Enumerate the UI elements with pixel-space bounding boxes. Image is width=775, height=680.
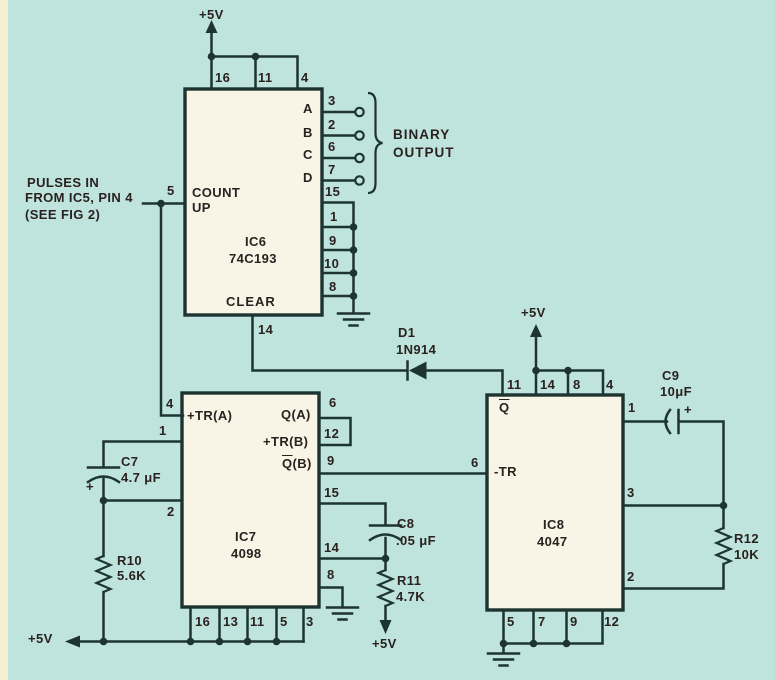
junction-dot (273, 638, 281, 646)
junction-dot (100, 497, 108, 505)
binary-output-label-1: BINARY (393, 127, 450, 142)
ic6-output-c-label: C (303, 148, 313, 163)
junction-dot (157, 200, 165, 208)
input-note-line1: PULSES IN (27, 176, 99, 191)
ic7-pin4-label: 4 (166, 397, 174, 412)
ic6-output-a-label: A (303, 102, 313, 117)
ic7-ref-label: IC7 (235, 530, 256, 545)
ic7-tra-label: +TR(A) (187, 409, 232, 424)
ic6-output-d-pin: 7 (328, 163, 336, 178)
ic8-pin1-label: 1 (628, 401, 636, 416)
ic6-pin5-label: 5 (167, 184, 175, 199)
terminal-output-c (355, 154, 363, 162)
junction-dot (500, 640, 508, 648)
wire-ic8-right-c9-r12 (623, 422, 724, 589)
wire-ic8-bottom-ground (504, 610, 603, 652)
ic7-pin2-label: 2 (167, 505, 175, 520)
wire-clear-d1-ic8 (253, 315, 503, 395)
ic6-clear-label: CLEAR (226, 295, 276, 310)
junction-dot (350, 246, 358, 254)
ic6-pin16-label: 16 (215, 71, 230, 86)
wire-c8-r11 (319, 504, 386, 622)
d1-part-label: 1N914 (396, 343, 436, 358)
wire-pulses-input (143, 204, 185, 416)
ic8-qbar-label: Q (499, 401, 510, 416)
vcc-label-bottom-left: +5V (28, 632, 53, 647)
ic8-part-label: 4047 (537, 535, 568, 550)
ic6-pin14-label: 14 (258, 323, 273, 338)
ic6-pin9-label: 9 (329, 234, 337, 249)
ic7-pin9-label: 9 (327, 454, 335, 469)
d1-diode-symbol (409, 362, 427, 380)
ic6-output-b-pin: 2 (328, 118, 336, 133)
ic6-output-c-pin: 6 (328, 140, 336, 155)
junction-dot (244, 638, 252, 646)
ic7-pin6-label: 6 (329, 396, 337, 411)
ic7-qa-label: Q(A) (281, 408, 311, 423)
r10-ref-label: R10 (117, 554, 142, 569)
ic6-output-d-label: D (303, 171, 313, 186)
ic7-pin3-label: 3 (306, 615, 314, 630)
schematic-figure: +5V 16 11 4 A 3 B 2 C 6 D 7 BINARY OUTPU… (0, 0, 775, 680)
ic6-pin11-label: 11 (258, 71, 273, 86)
ic7-qb-label: Q(B) (282, 457, 312, 472)
d1-ref-label: D1 (398, 326, 415, 341)
ground-symbol-ic7 (327, 608, 358, 620)
junction-dot (216, 638, 224, 646)
ic7-body (182, 393, 319, 607)
ic8-pin7-label: 7 (538, 615, 546, 630)
junction-dot (350, 223, 358, 231)
arrow-down-5v-r11 (380, 620, 392, 634)
ic6-part-label: 74C193 (229, 252, 277, 267)
ground-symbol-ic6 (338, 314, 369, 326)
r12-ref-label: R12 (734, 532, 759, 547)
ground-symbol-ic8 (488, 654, 519, 666)
ic7-pin13-label: 13 (223, 615, 238, 630)
ic8-pin6-label: 6 (471, 456, 479, 471)
ic6-pin1-label: 1 (330, 210, 338, 225)
ic7-pin1-label: 1 (159, 424, 167, 439)
ic6-pin8-label: 8 (329, 280, 337, 295)
ic7-pin16-label: 16 (195, 615, 210, 630)
ic6-output-b-label: B (303, 126, 313, 141)
r10-value-label: 5.6K (117, 569, 146, 584)
c7-polarity-label: + (86, 480, 94, 495)
junction-dot (100, 638, 108, 646)
c9-ref-label: C9 (662, 369, 679, 384)
vcc-label-r11: +5V (372, 637, 397, 652)
c7-ref-label: C7 (121, 455, 138, 470)
ic6-ref-label: IC6 (245, 235, 266, 250)
input-note-line2: FROM IC5, PIN 4 (25, 191, 133, 206)
junction-dot (564, 367, 572, 375)
ic8-pin4-label: 4 (606, 378, 614, 393)
ic8-pin2-label: 2 (627, 570, 635, 585)
r11-value-label: 4.7K (396, 590, 425, 605)
junction-dot (252, 53, 260, 61)
ic8-pin12-label: 12 (604, 615, 619, 630)
ic7-trb-label: +TR(B) (263, 435, 308, 450)
ic6-output-a-pin: 3 (328, 94, 336, 109)
arrow-up-5v-ic8 (530, 324, 542, 337)
ic8-tr-label: -TR (494, 465, 517, 480)
terminal-output-a (355, 108, 363, 116)
ic8-pin14-label: 14 (540, 378, 555, 393)
input-note-line3: (SEE FIG 2) (25, 208, 100, 223)
ic6-pin10-label: 10 (324, 257, 339, 272)
junction-dot (720, 502, 728, 510)
r12-resistor-symbol (717, 528, 731, 564)
arrow-left-5v-bottom (65, 636, 80, 648)
ic8-pin3-label: 3 (627, 486, 635, 501)
c8-ref-label: C8 (397, 517, 414, 532)
vcc-label-top: +5V (199, 8, 224, 23)
junction-dot (350, 269, 358, 277)
ic8-pin9-label: 9 (570, 615, 578, 630)
junction-dot (530, 640, 538, 648)
c7-value-label: 4.7 μF (121, 471, 161, 486)
junction-dot (208, 53, 216, 61)
ic8-pin5-label: 5 (507, 615, 515, 630)
r12-value-label: 10K (734, 548, 759, 563)
c9-polarity-label: + (684, 403, 692, 418)
junction-dot (532, 367, 540, 375)
r11-ref-label: R11 (397, 574, 421, 589)
r10-resistor-symbol (97, 556, 111, 592)
ic6-countup-label-1: COUNT (192, 186, 240, 201)
ic8-qbar-text: Q (499, 400, 510, 415)
terminal-output-b (355, 131, 363, 139)
ic6-pin4-label: 4 (301, 71, 309, 86)
ic7-pin14-label: 14 (324, 541, 339, 556)
ic7-part-label: 4098 (231, 547, 262, 562)
junction-dot (187, 638, 195, 646)
ic7-pin8-label: 8 (327, 568, 335, 583)
c8-value-label: .05 μF (396, 534, 436, 549)
terminal-output-d (355, 176, 363, 184)
ic7-pin5-label: 5 (280, 615, 288, 630)
vcc-label-ic8: +5V (521, 306, 546, 321)
ic7-qb-text: Q (282, 456, 293, 471)
r11-resistor-symbol (379, 570, 393, 606)
ic8-pin8-label: 8 (573, 378, 581, 393)
ic6-pin15-label: 15 (325, 185, 340, 200)
junction-dot (382, 555, 390, 563)
junction-dot (563, 640, 571, 648)
binary-output-label-2: OUTPUT (393, 145, 455, 160)
ic8-body (487, 395, 623, 610)
ic7-pin11-label: 11 (250, 615, 265, 630)
ic6-countup-label-2: UP (192, 201, 211, 216)
ic7-pin12-label: 12 (324, 427, 339, 442)
c9-value-label: 10μF (660, 385, 692, 400)
binary-output-brace (368, 93, 383, 193)
ic8-pin11-label: 11 (507, 378, 522, 393)
ic7-qb-suffix: (B) (293, 456, 312, 471)
junction-dot (350, 292, 358, 300)
ic7-pin15-label: 15 (324, 486, 339, 501)
ic8-ref-label: IC8 (543, 518, 564, 533)
wire-ic7-pin8-ground (319, 588, 343, 607)
